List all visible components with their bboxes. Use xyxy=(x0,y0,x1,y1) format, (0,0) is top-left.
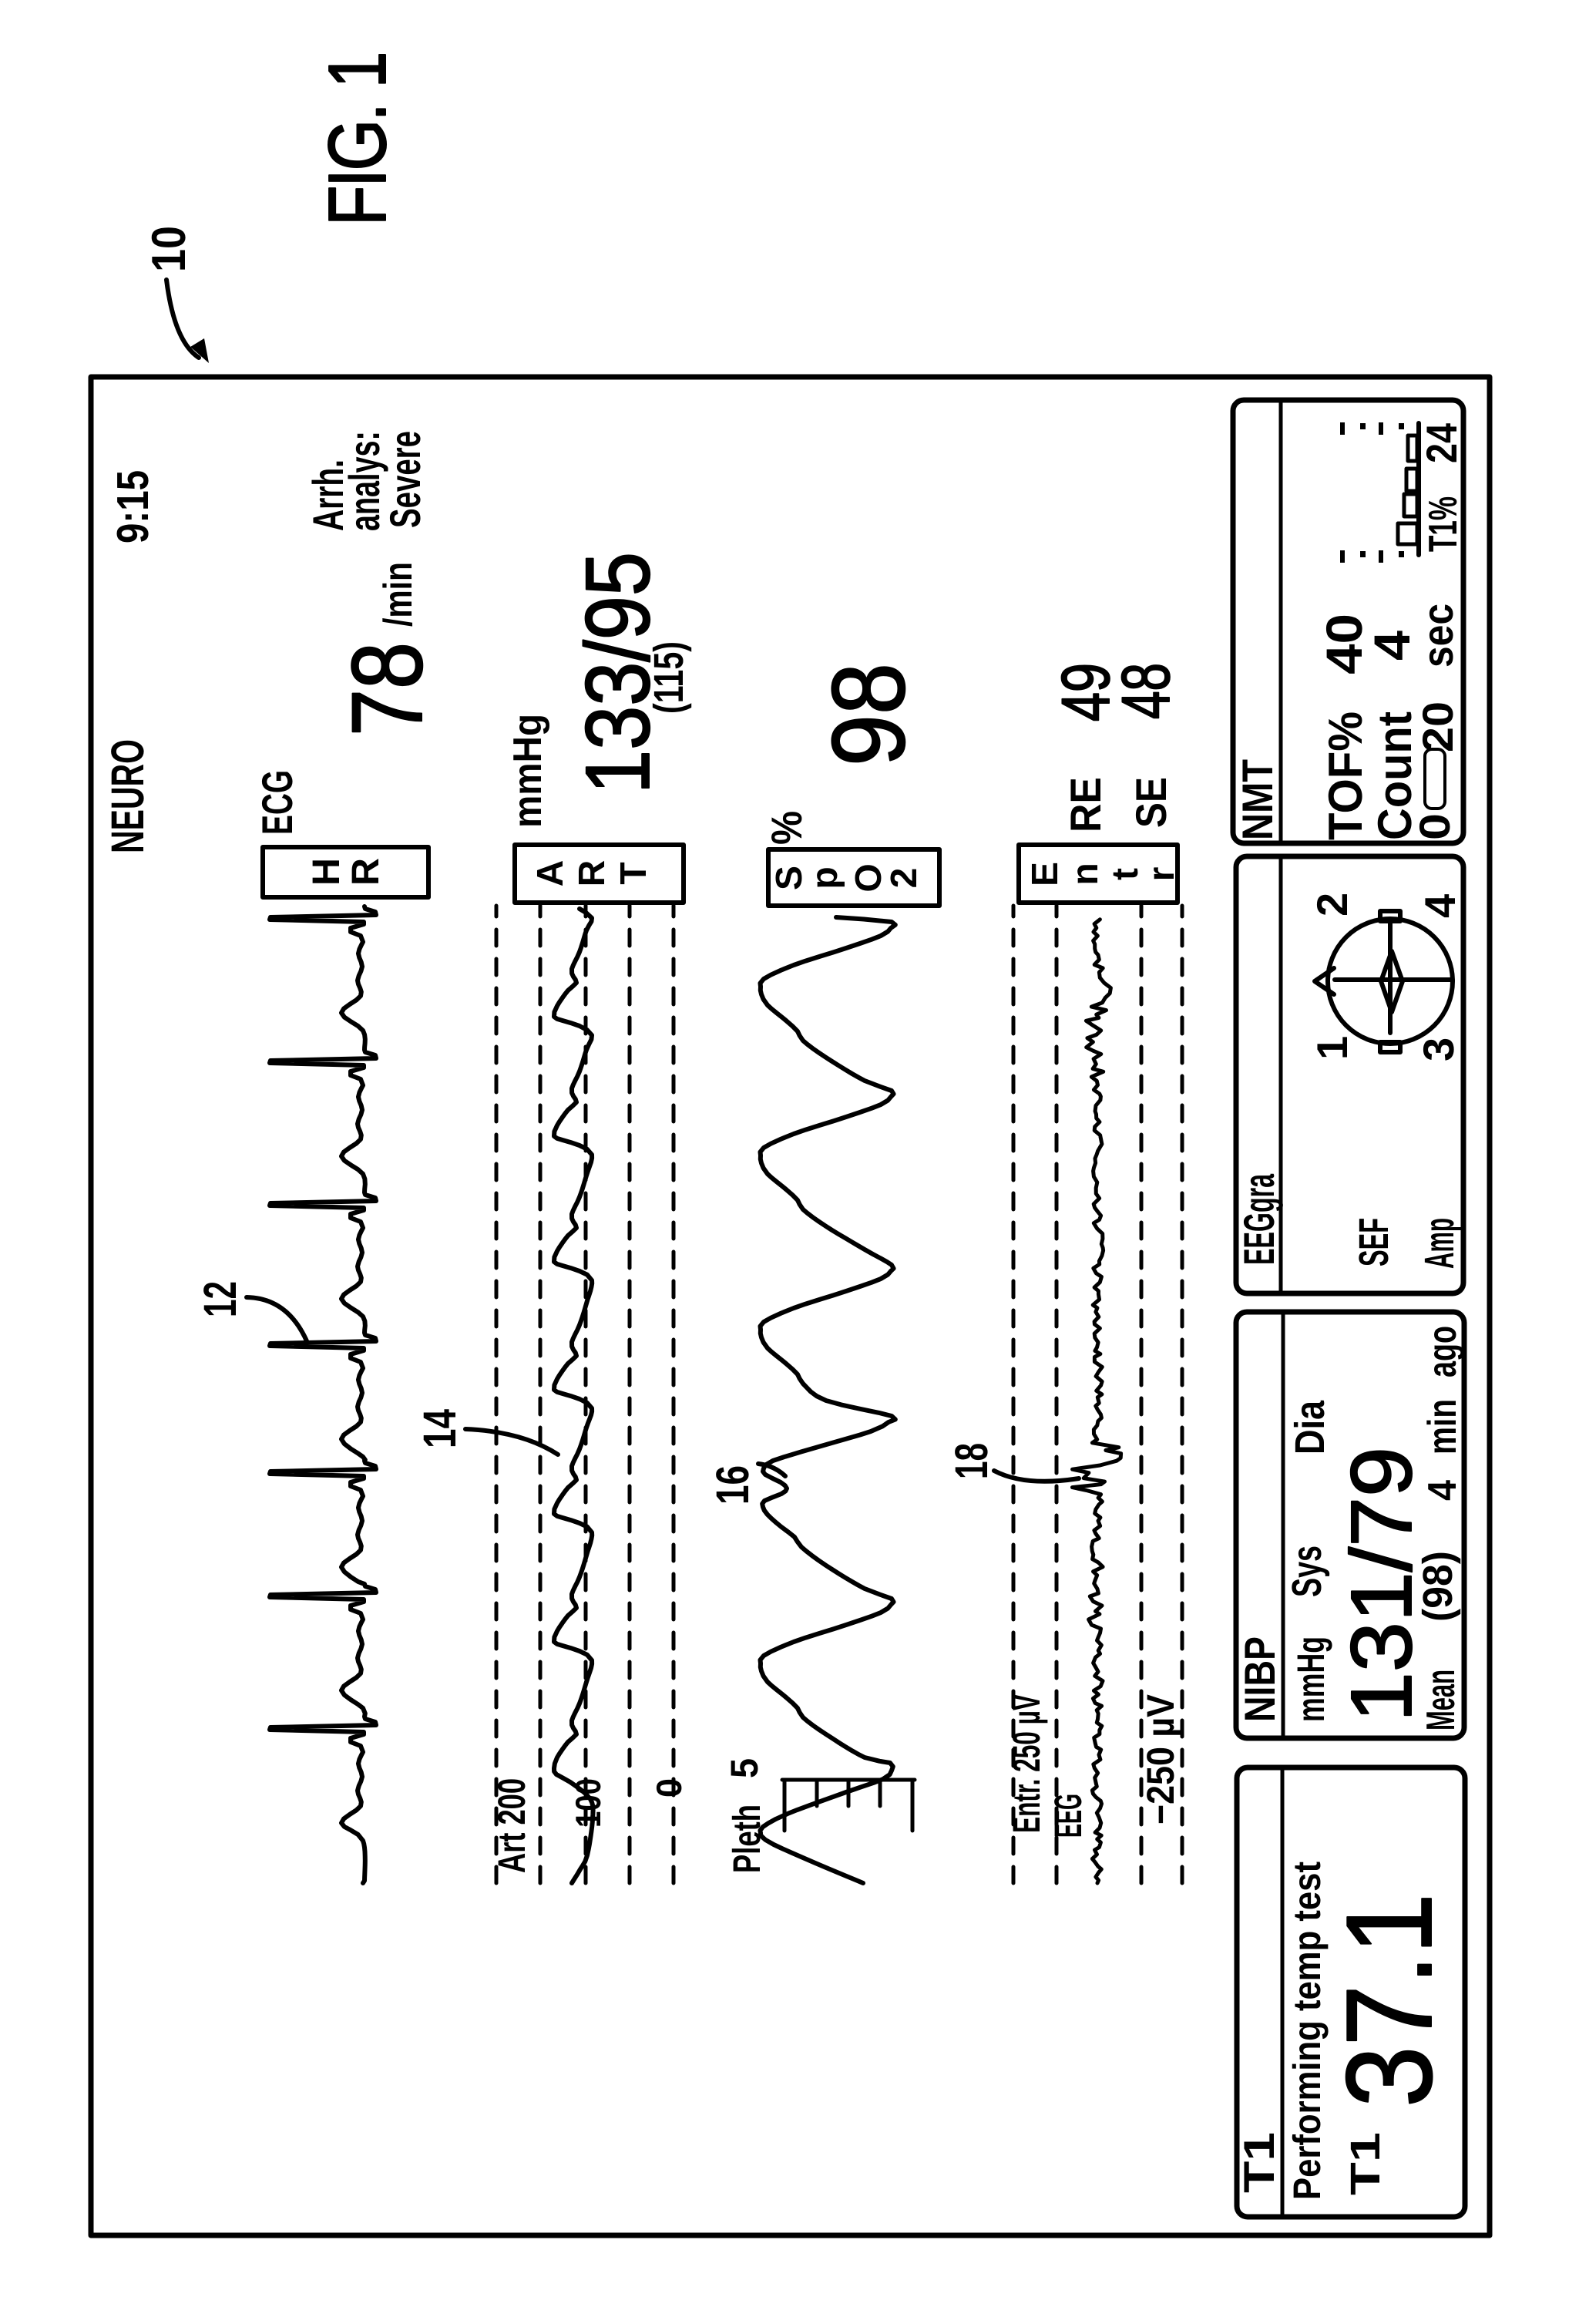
svg-text:NIBP: NIBP xyxy=(1235,1636,1284,1722)
svg-text:T1%: T1% xyxy=(1421,496,1466,552)
svg-text:p: p xyxy=(805,866,845,889)
svg-text:R: R xyxy=(572,860,613,887)
svg-text:NMT: NMT xyxy=(1233,759,1282,840)
svg-text:5: 5 xyxy=(723,1758,766,1778)
svg-text:EEGgra: EEGgra xyxy=(1235,1174,1283,1265)
svg-text:Art 200: Art 200 xyxy=(490,1778,533,1873)
svg-text:20: 20 xyxy=(1413,701,1462,752)
svg-text:1: 1 xyxy=(1308,1036,1356,1060)
svg-text:Entr. 250 µV: Entr. 250 µV xyxy=(1005,1694,1048,1833)
svg-text:4: 4 xyxy=(1420,1480,1465,1501)
svg-text:r: r xyxy=(1141,867,1182,882)
svg-text:Sys: Sys xyxy=(1284,1545,1330,1597)
svg-text:Mean: Mean xyxy=(1419,1670,1463,1730)
svg-text:mmHg: mmHg xyxy=(506,714,550,828)
svg-text:%: % xyxy=(762,811,811,845)
svg-text:R: R xyxy=(344,858,387,886)
svg-text:14: 14 xyxy=(414,1409,465,1448)
svg-text:24: 24 xyxy=(1417,423,1466,463)
svg-text:T1: T1 xyxy=(1342,2132,1389,2195)
svg-text:9:15: 9:15 xyxy=(108,470,158,543)
svg-text:37.1: 37.1 xyxy=(1322,1893,1457,2107)
svg-text:TOF%: TOF% xyxy=(1319,711,1372,840)
svg-text:t: t xyxy=(1105,868,1146,880)
svg-text:4: 4 xyxy=(1363,631,1420,661)
svg-text:2: 2 xyxy=(884,868,925,889)
svg-text:T: T xyxy=(613,862,654,884)
svg-text:/min: /min xyxy=(376,562,421,627)
svg-text:ago: ago xyxy=(1420,1326,1465,1377)
svg-text:ECG: ECG xyxy=(253,770,301,835)
svg-text:78: 78 xyxy=(331,642,443,736)
svg-text:RE: RE xyxy=(1061,777,1110,832)
svg-text:10: 10 xyxy=(143,226,196,272)
svg-text:2: 2 xyxy=(1308,893,1356,916)
svg-text:E: E xyxy=(1025,862,1066,886)
svg-text:Amp: Amp xyxy=(1416,1218,1463,1269)
svg-text:0: 0 xyxy=(649,1778,689,1798)
svg-text:NEURO: NEURO xyxy=(102,739,153,853)
svg-text:FIG. 1: FIG. 1 xyxy=(312,53,403,226)
svg-text:n: n xyxy=(1065,863,1106,885)
svg-text:12: 12 xyxy=(194,1281,246,1317)
svg-text:Severe: Severe xyxy=(381,431,429,528)
svg-text:−250 µV: −250 µV xyxy=(1139,1693,1182,1825)
svg-text:98: 98 xyxy=(811,663,926,766)
svg-text:18: 18 xyxy=(946,1443,997,1479)
svg-text:Pleth: Pleth xyxy=(725,1804,768,1873)
svg-text:min: min xyxy=(1420,1399,1465,1455)
svg-text:mmHg: mmHg xyxy=(1289,1636,1332,1722)
svg-text:16: 16 xyxy=(707,1465,758,1505)
svg-text:4: 4 xyxy=(1416,894,1464,918)
svg-text:sec: sec xyxy=(1413,604,1462,668)
svg-text:H: H xyxy=(304,858,348,886)
svg-text:Dia: Dia xyxy=(1287,1400,1333,1455)
svg-text:T1: T1 xyxy=(1235,2132,1283,2193)
svg-text:EEG: EEG xyxy=(1047,1794,1090,1838)
svg-text:0: 0 xyxy=(1410,813,1459,840)
svg-text:3: 3 xyxy=(1414,1038,1463,1061)
svg-text:(98): (98) xyxy=(1415,1551,1461,1622)
svg-text:A: A xyxy=(530,860,571,887)
svg-text:48: 48 xyxy=(1107,663,1184,719)
svg-text:SEF: SEF xyxy=(1351,1218,1397,1266)
svg-text:SE: SE xyxy=(1127,777,1175,828)
svg-text:(115): (115) xyxy=(646,641,692,714)
